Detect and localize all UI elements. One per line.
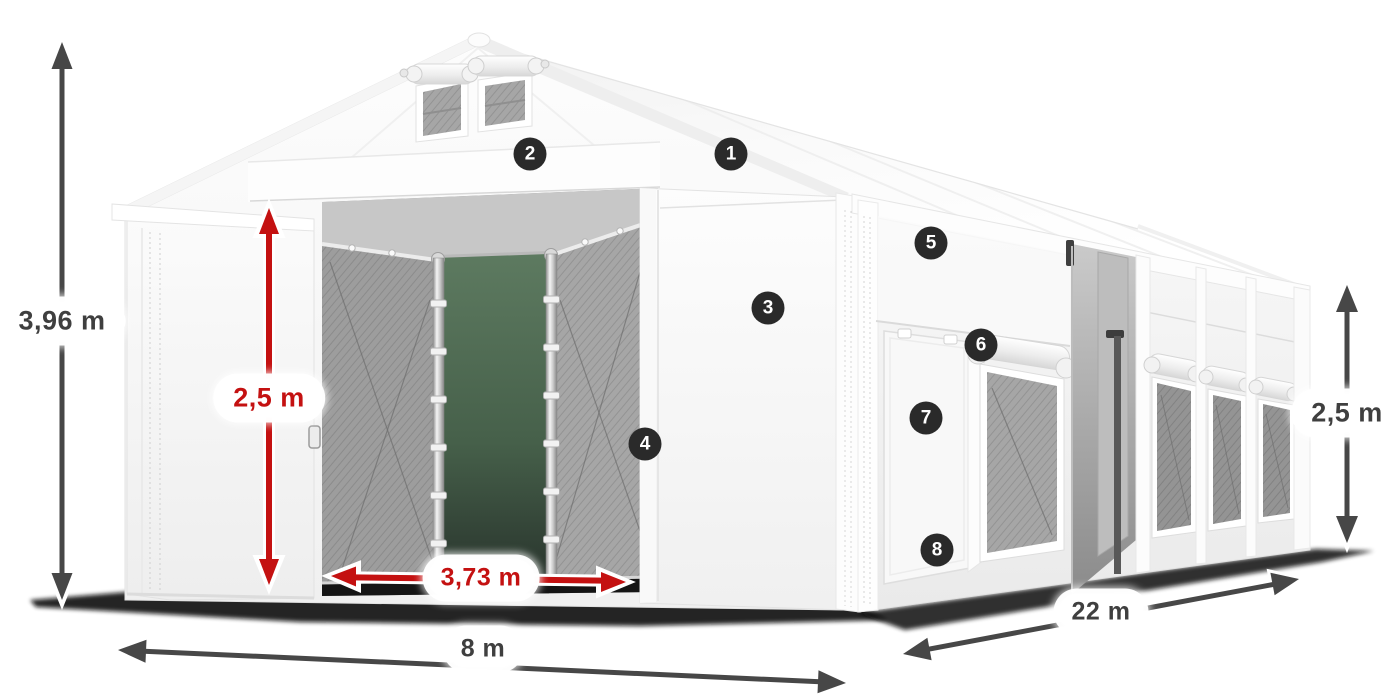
entrance-pole-right [544, 249, 560, 589]
see-through-opening [436, 254, 549, 596]
callout-badge-5: 5 [915, 227, 948, 260]
dim-label-length: 22 m [1059, 594, 1144, 631]
front-right-wall [640, 188, 845, 610]
door-handle [309, 426, 320, 448]
tent-illustration [0, 0, 1400, 700]
dim-label-entrance-height: 2,5 m [218, 379, 320, 418]
callout-badge-2: 2 [514, 138, 547, 171]
entrance-pole-left [431, 253, 447, 589]
tent-dimension-diagram: 3,96 m 2,5 m 3,73 m 8 m 22 m 2,5 m 1 2 3… [0, 0, 1400, 700]
side-open-doorway [1066, 240, 1136, 594]
dim-label-width: 8 m [448, 631, 519, 668]
callout-badge-6: 6 [965, 329, 998, 362]
front-corner-post [836, 193, 860, 612]
callout-badge-3: 3 [752, 292, 785, 325]
callout-badge-4: 4 [629, 428, 662, 461]
dim-label-entrance-width: 3,73 m [428, 560, 535, 597]
callout-badge-7: 7 [910, 402, 943, 435]
entrance-opening [322, 188, 658, 596]
callout-badge-8: 8 [921, 534, 954, 567]
door-hook-1 [898, 329, 911, 338]
door-hook-2 [944, 335, 957, 344]
dim-label-side-height: 2,5 m [1296, 394, 1398, 433]
dim-label-total-height: 3,96 m [3, 302, 120, 341]
callout-badge-1: 1 [715, 138, 748, 171]
